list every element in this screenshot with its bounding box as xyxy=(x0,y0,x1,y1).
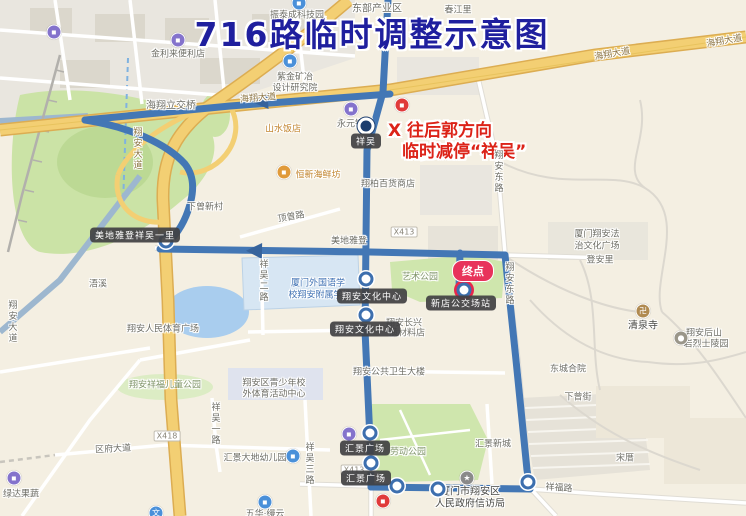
temple-icon[interactable]: 卍 xyxy=(636,304,651,319)
map-label: 浯溪 xyxy=(89,277,107,290)
map-label: 下曾街 xyxy=(564,390,591,403)
bus-stop-label: 祥吴 xyxy=(351,134,381,149)
map-label: 下曾新村 xyxy=(187,200,223,213)
map-label: 山水饭店 xyxy=(265,122,301,135)
map-label: 设计研究院 xyxy=(272,81,317,94)
stop-huijing-1[interactable] xyxy=(363,426,378,441)
bus-stop-label: 新店公交场站 xyxy=(426,296,496,311)
map-label: 东城合院 xyxy=(550,362,586,375)
map-label: 海翔大道 xyxy=(705,30,743,49)
grocery-icon[interactable]: ▪ xyxy=(7,471,22,486)
stop-south-2[interactable] xyxy=(431,482,446,497)
mall-icon[interactable]: ▪ xyxy=(395,98,410,113)
stop-wenhuazhongxin-1[interactable] xyxy=(359,272,374,287)
institute-icon[interactable]: ▪ xyxy=(283,54,298,69)
culture-icon[interactable]: 文 xyxy=(149,506,164,516)
map-label: 区府大道 xyxy=(95,441,132,456)
bus-stop-label: 翔安文化中心 xyxy=(330,322,400,337)
shop-icon[interactable]: ▪ xyxy=(47,25,62,40)
map-label: 绿达果蔬 xyxy=(3,487,39,500)
map-label: 劳动公园 xyxy=(390,445,426,458)
map-label: 海翔立交桥 xyxy=(146,97,196,112)
map-label: 祥吴三路 xyxy=(303,442,316,486)
government-icon[interactable]: ★ xyxy=(460,471,475,486)
stop-corner[interactable] xyxy=(521,475,536,490)
map-canvas[interactable]: 716路临时调整示意图 X 往后郭方向 临时减停“祥吴” 东部产业区春江里振泰成… xyxy=(0,0,746,516)
shop-icon[interactable]: ▪ xyxy=(376,494,391,509)
map-label: 翔安东路 xyxy=(492,150,505,194)
map-label: X413 xyxy=(391,227,418,238)
stop-south-1[interactable] xyxy=(390,479,405,494)
bus-stop-label: 美地雅登祥吴一里 xyxy=(90,228,180,243)
restaurant-icon[interactable]: ▪ xyxy=(277,165,292,180)
map-label: 恒新海鲜坊 xyxy=(295,168,340,181)
bus-stop-label: 翔安文化中心 xyxy=(337,289,407,304)
map-label: 翔安东路 xyxy=(503,262,516,306)
bus-stop-label: 汇景广场 xyxy=(340,441,390,456)
stop-huijing-2[interactable] xyxy=(364,456,379,471)
map-label: 顶曾路 xyxy=(277,207,306,224)
page-title: 716路临时调整示意图 xyxy=(195,8,550,56)
terminus-badge: 终点 xyxy=(452,260,494,282)
map-label: 翔安祥福儿童公园 xyxy=(129,378,201,391)
stop-xiangwu[interactable] xyxy=(358,118,375,135)
map-label: 外体育活动中心 xyxy=(242,387,305,400)
map-label: 祥吴二路 xyxy=(257,259,270,303)
map-label: 东部产业区 xyxy=(352,0,402,15)
map-label: 祥福路 xyxy=(545,480,573,495)
map-label: 宋厝 xyxy=(616,451,634,464)
convenience-store-icon[interactable]: ▪ xyxy=(171,33,186,48)
map-label: 汇景大地幼儿园 xyxy=(223,451,286,464)
map-label: X418 xyxy=(154,431,181,442)
residence-icon[interactable]: ▪ xyxy=(258,495,273,510)
map-label: 清泉寺 xyxy=(628,317,658,332)
map-label: 翔柏百货商店 xyxy=(361,177,415,190)
map-label: 汇景新城 xyxy=(475,437,511,450)
map-label: 翔安人民体育广场 xyxy=(127,322,199,335)
map-label: 祥吴一路 xyxy=(209,402,222,446)
kindergarten-icon[interactable]: ▪ xyxy=(286,449,301,464)
map-label: 海翔大道 xyxy=(593,43,631,62)
annotation-line2: 临时减停“祥吴” xyxy=(402,137,526,162)
label-layer: 716路临时调整示意图 X 往后郭方向 临时减停“祥吴” 东部产业区春江里振泰成… xyxy=(0,0,746,516)
steel-shop-icon[interactable]: ▪ xyxy=(344,102,359,117)
map-label: 登安里 xyxy=(586,253,613,266)
map-label: 金利来便利店 xyxy=(151,47,205,60)
map-label: 春江里 xyxy=(444,3,471,16)
stop-wenhuazhongxin-2[interactable] xyxy=(359,308,374,323)
plaza-mall-icon[interactable]: ▪ xyxy=(342,427,357,442)
map-label: 治文化广场 xyxy=(574,239,619,252)
bus-stop-label: 汇景广场 xyxy=(341,471,391,486)
map-label: 翔安大道 xyxy=(131,127,144,171)
map-label: 艺术公园 xyxy=(402,270,438,283)
map-label: 岩烈士陵园 xyxy=(683,337,728,350)
map-label: 美地雅登 xyxy=(331,234,367,247)
map-label: 翔安大道 xyxy=(6,300,19,344)
map-label: 人民政府信访局 xyxy=(435,495,505,510)
map-label: 海翔大道 xyxy=(239,89,276,105)
map-label: 翔安公共卫生大楼 xyxy=(353,365,425,378)
memorial-icon[interactable]: ● xyxy=(674,331,689,346)
